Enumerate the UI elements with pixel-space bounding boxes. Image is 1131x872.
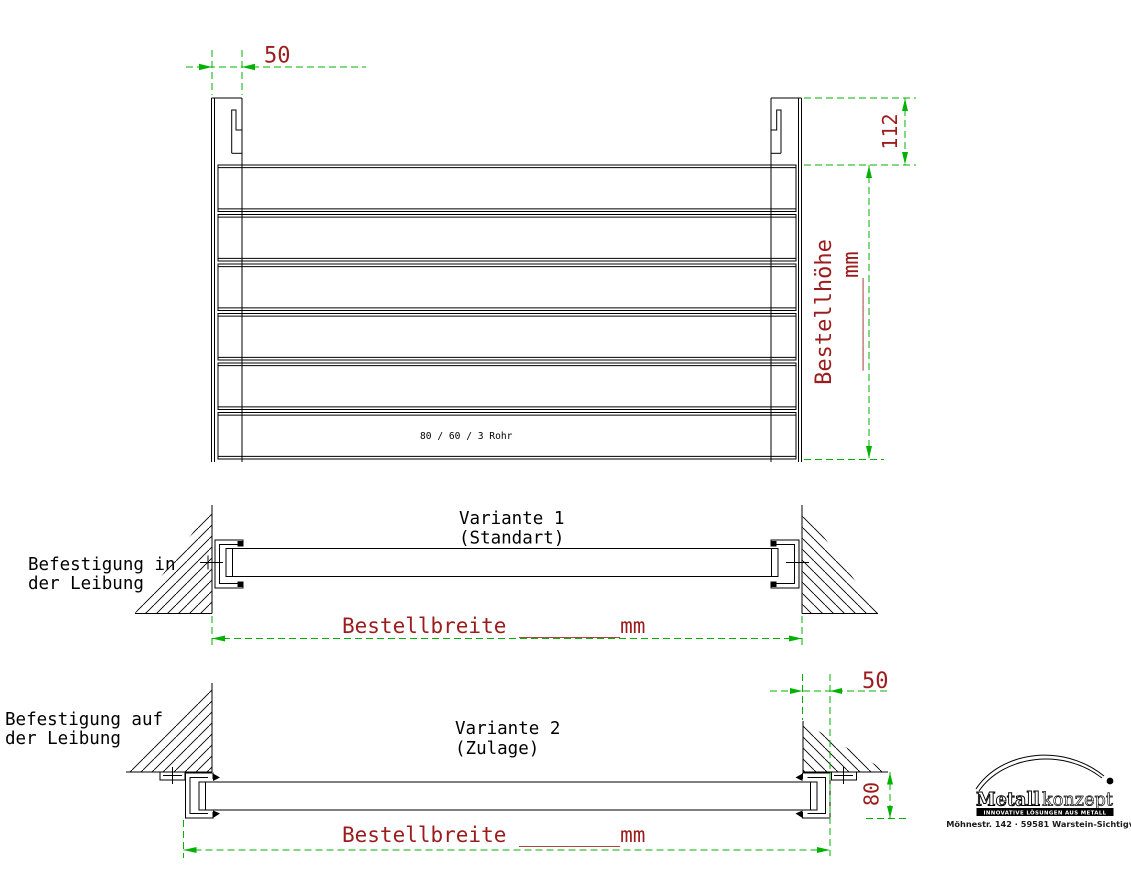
order-width-label-v1: Bestellbreite ________mm — [342, 614, 645, 638]
technical-drawing-page: 80 / 60 / 3 Rohr 50 112 Bestellhöhe — [0, 0, 1131, 872]
dim-112-label: 112 — [878, 113, 902, 149]
logo-tagline: INNOVATIVE LÖSUNGEN AUS METALL — [983, 809, 1106, 816]
logo-address: Möhnestr. 142 · 59581 Warstein-Sichtigvo… — [946, 819, 1131, 829]
dim-50-top-label: 50 — [264, 44, 291, 69]
variant1-title: Variante 1 — [459, 509, 564, 529]
variant1-subtitle: (Standart) — [459, 529, 564, 549]
variant2-subtitle: (Zulage) — [455, 739, 539, 759]
variant2-title: Variante 2 — [455, 719, 560, 739]
tube-spec-label: 80 / 60 / 3 Rohr — [420, 431, 513, 442]
variant2-mount-label-line2: der Leibung — [5, 729, 121, 749]
variant1-mount-label-line2: der Leibung — [28, 574, 144, 594]
order-height-label: Bestellhöhe — [812, 239, 837, 385]
variant1-mount-label-line1: Befestigung in — [28, 555, 176, 575]
technical-drawing: 80 / 60 / 3 Rohr 50 112 Bestellhöhe — [0, 0, 1131, 872]
order-width-label-v2: Bestellbreite ________mm — [342, 823, 645, 847]
logo-dot-icon — [1107, 778, 1114, 785]
logo-brand-bold: Metall — [976, 789, 1040, 811]
logo-brand-rest: konzept — [1042, 789, 1113, 811]
dim-80-label: 80 — [860, 782, 884, 806]
order-height-blank: _______mm — [839, 251, 864, 370]
variant2-mount-label-line1: Befestigung auf — [5, 710, 163, 730]
dim-50-v2-label: 50 — [862, 669, 889, 694]
